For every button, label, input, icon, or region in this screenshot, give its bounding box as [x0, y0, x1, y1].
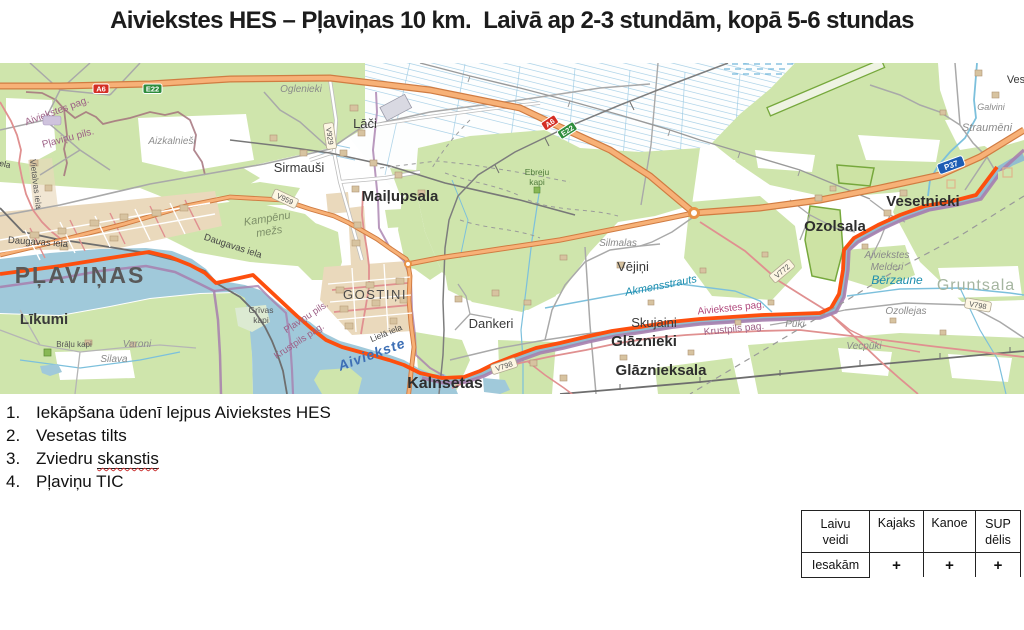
svg-text:Grīvas: Grīvas	[248, 305, 273, 315]
svg-text:Varoni: Varoni	[123, 339, 152, 350]
svg-text:Vesetnieki: Vesetnieki	[886, 193, 959, 210]
svg-text:Ves: Ves	[1007, 74, 1024, 86]
svg-text:Lāči: Lāči	[353, 116, 377, 131]
svg-text:kapi: kapi	[529, 177, 545, 187]
svg-text:Skujaini: Skujaini	[631, 315, 677, 330]
svg-text:Glāznieki: Glāznieki	[611, 333, 677, 350]
svg-text:Vecpūki: Vecpūki	[846, 341, 882, 352]
svg-text:Dankeri: Dankeri	[469, 316, 514, 331]
svg-text:Bērzaune: Bērzaune	[871, 273, 923, 287]
svg-text:Oglenieki: Oglenieki	[280, 84, 322, 95]
svg-text:Pūki: Pūki	[785, 319, 805, 330]
svg-text:Sirmauši: Sirmauši	[274, 160, 325, 175]
svg-text:Vējiņi: Vējiņi	[617, 259, 649, 274]
svg-text:Ebreju: Ebreju	[525, 167, 550, 177]
svg-text:Galvini: Galvini	[977, 102, 1006, 112]
svg-text:A6: A6	[96, 85, 106, 94]
svg-text:Kalnsetas: Kalnsetas	[407, 375, 483, 392]
svg-text:kapi: kapi	[253, 315, 269, 325]
svg-text:Gruntsala: Gruntsala	[937, 277, 1015, 294]
svg-text:Līkumi: Līkumi	[20, 311, 68, 328]
svg-text:Brāļu kapi: Brāļu kapi	[56, 340, 92, 349]
svg-text:Ozolsala: Ozolsala	[804, 218, 866, 235]
svg-text:Aiviekstes: Aiviekstes	[863, 250, 909, 261]
svg-text:Maiļupsala: Maiļupsala	[362, 188, 439, 205]
svg-text:Straumēni: Straumēni	[962, 122, 1013, 134]
svg-text:PĻAVIŅAS: PĻAVIŅAS	[15, 262, 146, 288]
svg-text:Silava: Silava	[100, 354, 128, 365]
svg-text:Glāznieksala: Glāznieksala	[616, 362, 708, 379]
svg-text:E22: E22	[146, 85, 159, 94]
svg-text:Ozollejas: Ozollejas	[885, 306, 926, 317]
svg-text:Aizkalnieši: Aizkalnieši	[147, 136, 196, 147]
svg-text:Silmalas: Silmalas	[599, 238, 637, 249]
svg-text:GOSTIŅI: GOSTIŅI	[343, 287, 407, 302]
svg-text:Melderi: Melderi	[871, 262, 905, 273]
